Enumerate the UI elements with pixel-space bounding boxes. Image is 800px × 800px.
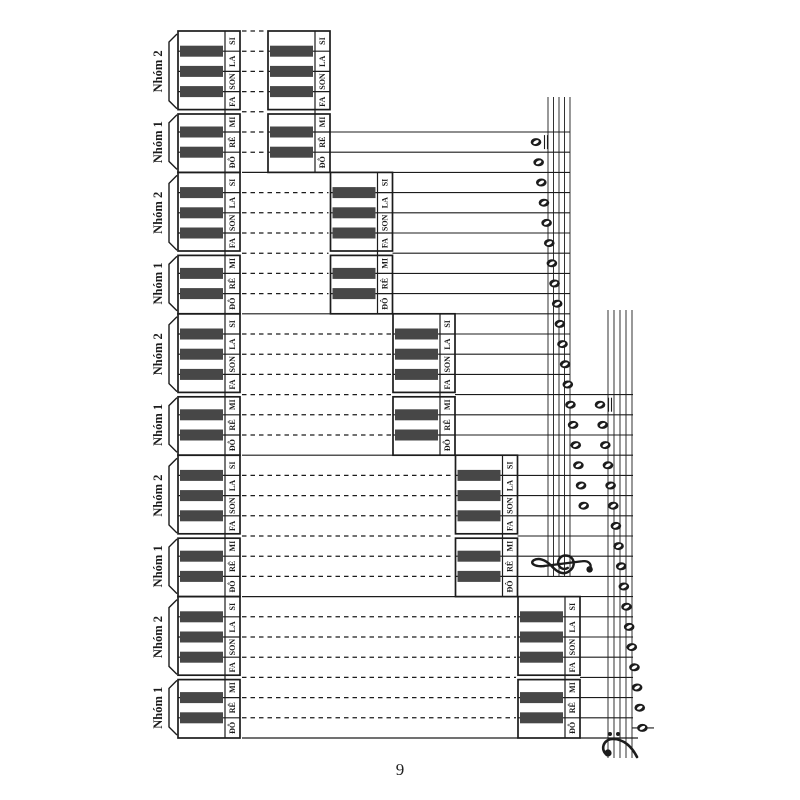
- group-brace-nhom2: [169, 317, 177, 392]
- key-label: LA: [568, 621, 577, 632]
- whole-note: [539, 199, 550, 207]
- black-key: [458, 490, 501, 501]
- key-label: SON: [228, 497, 237, 514]
- keyboard-staff-diagram: SILASONFAMIRÊĐÔSILASONFAMIRÊĐÔNhóm 2Nhóm…: [0, 0, 800, 800]
- key-label: SON: [443, 356, 452, 373]
- whole-note: [613, 542, 624, 550]
- group-brace-nhom1: [169, 680, 177, 735]
- black-key: [180, 288, 223, 299]
- black-key: [180, 409, 223, 420]
- key-label: SI: [228, 37, 237, 45]
- key-label: FA: [443, 379, 452, 389]
- black-key: [180, 510, 223, 521]
- octave-connector-dashes: [242, 334, 391, 435]
- black-key: [395, 349, 438, 360]
- black-key: [180, 692, 223, 703]
- black-key: [180, 329, 223, 340]
- group-brace-nhom2: [169, 458, 177, 533]
- whole-note: [547, 259, 558, 267]
- key-label: SI: [506, 462, 515, 470]
- key-label: MI: [228, 117, 237, 128]
- key-label: LA: [228, 480, 237, 491]
- black-key: [270, 46, 313, 57]
- bass-staff-note-column: [595, 398, 648, 732]
- key-label: LA: [506, 480, 515, 491]
- black-key: [180, 349, 223, 360]
- whole-note: [632, 684, 643, 692]
- octave-connector-dashes: [242, 617, 516, 718]
- whole-note: [611, 522, 622, 530]
- black-key: [395, 430, 438, 441]
- key-label: ĐÔ: [317, 156, 327, 168]
- whole-note: [541, 219, 552, 227]
- key-label: SI: [228, 462, 237, 470]
- black-key: [180, 86, 223, 97]
- key-label: RÊ: [227, 278, 237, 289]
- black-key: [180, 46, 223, 57]
- key-label: FA: [228, 379, 237, 389]
- whole-note: [619, 583, 630, 591]
- whole-note: [627, 643, 638, 651]
- key-label: ĐÔ: [380, 298, 390, 310]
- group-brace-nhom2: [169, 34, 177, 109]
- octave-connector-dashes: [242, 193, 329, 294]
- key-label: ĐÔ: [567, 722, 577, 734]
- black-key: [395, 369, 438, 380]
- group-brace-nhom2: [169, 175, 177, 250]
- black-key: [180, 430, 223, 441]
- black-key: [180, 187, 223, 198]
- whole-note: [578, 502, 589, 510]
- key-label: ĐÔ: [227, 298, 237, 310]
- keyboard-octave-5-right: SILASONFAMIRÊĐÔ: [518, 597, 580, 738]
- whole-note: [603, 461, 614, 469]
- black-key: [520, 611, 563, 622]
- black-key: [180, 127, 223, 138]
- black-key: [180, 490, 223, 501]
- black-key: [333, 228, 376, 239]
- black-key: [520, 632, 563, 643]
- black-key: [270, 147, 313, 158]
- black-key: [180, 66, 223, 77]
- keyboard-octave-2-left: SILASONFAMIRÊĐÔ: [178, 172, 240, 313]
- keyboard-octave-3-right: SILASONFAMIRÊĐÔ: [393, 314, 455, 455]
- group-label: Nhóm 1: [151, 121, 165, 163]
- treble-staff-note-column: [531, 135, 589, 510]
- black-key: [333, 288, 376, 299]
- whole-note: [600, 441, 611, 449]
- key-label: FA: [228, 238, 237, 248]
- black-key: [270, 86, 313, 97]
- whole-note: [637, 724, 648, 732]
- key-label: ĐÔ: [442, 439, 452, 451]
- whole-note: [570, 441, 581, 449]
- whole-note: [552, 300, 563, 308]
- whole-note: [544, 239, 555, 247]
- key-label: RÊ: [227, 137, 237, 148]
- octave-connector-dashes: [242, 31, 266, 152]
- whole-note: [595, 401, 606, 409]
- group-label: Nhóm 2: [151, 50, 165, 92]
- group-label: Nhóm 2: [151, 475, 165, 517]
- black-key: [270, 66, 313, 77]
- key-label: LA: [228, 338, 237, 349]
- whole-note: [549, 280, 560, 288]
- black-key: [270, 127, 313, 138]
- whole-note: [533, 158, 544, 166]
- group-label: Nhóm 1: [151, 404, 165, 446]
- black-key: [180, 551, 223, 562]
- octave-connector-dashes: [242, 475, 454, 576]
- key-label: FA: [506, 521, 515, 531]
- key-label: SON: [228, 214, 237, 231]
- black-key: [180, 207, 223, 218]
- key-label: FA: [228, 662, 237, 672]
- key-label: MI: [228, 258, 237, 269]
- key-label: MI: [381, 258, 390, 269]
- whole-note: [608, 502, 619, 510]
- bass-staff-lines: [608, 310, 632, 758]
- book-page: SILASONFAMIRÊĐÔSILASONFAMIRÊĐÔNhóm 2Nhóm…: [0, 0, 800, 800]
- key-label: SON: [228, 639, 237, 656]
- octave-row-5: SILASONFAMIRÊĐÔSILASONFAMIRÊĐÔNhóm 2Nhóm…: [151, 597, 580, 738]
- black-key: [180, 470, 223, 481]
- black-key: [180, 147, 223, 158]
- key-label: RÊ: [227, 419, 237, 430]
- whole-note: [565, 401, 576, 409]
- black-key: [458, 510, 501, 521]
- key-label: RÊ: [442, 419, 452, 430]
- key-label: LA: [443, 338, 452, 349]
- octave-row-1: SILASONFAMIRÊĐÔSILASONFAMIRÊĐÔNhóm 2Nhóm…: [151, 31, 330, 172]
- key-label: SI: [443, 320, 452, 328]
- whole-note: [573, 461, 584, 469]
- key-label: RÊ: [227, 561, 237, 572]
- group-label: Nhóm 1: [151, 545, 165, 587]
- key-label: ĐÔ: [227, 439, 237, 451]
- group-brace-nhom2: [169, 600, 177, 675]
- key-label: ĐÔ: [227, 156, 237, 168]
- key-label: SI: [568, 603, 577, 611]
- group-brace-nhom1: [169, 256, 177, 311]
- keyboard-octave-2-right: SILASONFAMIRÊĐÔ: [331, 172, 393, 313]
- keyboard-octave-1-right: SILASONFAMIRÊĐÔ: [268, 31, 330, 172]
- page-number: 9: [0, 760, 800, 780]
- keyboard-octave-1-left: SILASONFAMIRÊĐÔ: [178, 31, 240, 172]
- key-label: LA: [228, 197, 237, 208]
- black-key: [180, 571, 223, 582]
- whole-note: [616, 562, 627, 570]
- whole-note: [560, 360, 571, 368]
- black-key: [520, 652, 563, 663]
- whole-note: [531, 138, 542, 146]
- key-label: RÊ: [567, 702, 577, 713]
- key-label: SON: [568, 639, 577, 656]
- octave-row-3: SILASONFAMIRÊĐÔSILASONFAMIRÊĐÔNhóm 2Nhóm…: [151, 314, 455, 455]
- black-key: [180, 712, 223, 723]
- whole-note: [605, 482, 616, 490]
- black-key: [395, 409, 438, 420]
- key-label: FA: [228, 96, 237, 106]
- key-label: LA: [228, 621, 237, 632]
- whole-note: [597, 421, 608, 429]
- black-key: [458, 470, 501, 481]
- key-label: FA: [381, 238, 390, 248]
- key-label: RÊ: [317, 137, 327, 148]
- key-label: FA: [318, 96, 327, 106]
- key-label: RÊ: [380, 278, 390, 289]
- black-key: [180, 611, 223, 622]
- key-label: LA: [381, 197, 390, 208]
- group-brace-nhom1: [169, 398, 177, 453]
- key-label: FA: [568, 662, 577, 672]
- black-key: [180, 369, 223, 380]
- key-label: SON: [506, 497, 515, 514]
- treble-clef-icon: [532, 556, 593, 574]
- key-label: MI: [318, 117, 327, 128]
- key-label: SI: [318, 37, 327, 45]
- octave-row-4: SILASONFAMIRÊĐÔSILASONFAMIRÊĐÔNhóm 2Nhóm…: [151, 455, 518, 596]
- whole-note: [624, 623, 635, 631]
- whole-note: [629, 663, 640, 671]
- group-label: Nhóm 2: [151, 333, 165, 375]
- keyboard-octave-4-left: SILASONFAMIRÊĐÔ: [178, 455, 240, 596]
- black-key: [520, 692, 563, 703]
- key-label: SON: [318, 73, 327, 90]
- group-label: Nhóm 1: [151, 687, 165, 729]
- black-key: [180, 268, 223, 279]
- black-key: [395, 329, 438, 340]
- key-label: MI: [228, 682, 237, 693]
- whole-note: [568, 421, 579, 429]
- key-label: SON: [228, 73, 237, 90]
- key-label: SI: [228, 603, 237, 611]
- whole-note: [555, 320, 566, 328]
- key-label: MI: [443, 399, 452, 410]
- whole-note: [634, 704, 645, 712]
- group-label: Nhóm 1: [151, 262, 165, 304]
- whole-note: [536, 179, 547, 187]
- keyboard-octave-4-right: SILASONFAMIRÊĐÔ: [456, 455, 518, 596]
- key-label: LA: [228, 56, 237, 67]
- key-label: MI: [228, 541, 237, 552]
- keyboard-octave-3-left: SILASONFAMIRÊĐÔ: [178, 314, 240, 455]
- key-label: MI: [568, 682, 577, 693]
- key-label: LA: [318, 56, 327, 67]
- whole-note: [557, 340, 568, 348]
- whole-note: [621, 603, 632, 611]
- key-label: SON: [228, 356, 237, 373]
- key-label: SI: [381, 179, 390, 187]
- key-label: FA: [228, 521, 237, 531]
- black-key: [333, 187, 376, 198]
- black-key: [458, 571, 501, 582]
- black-key: [458, 551, 501, 562]
- key-label: ĐÔ: [227, 722, 237, 734]
- group-brace-nhom1: [169, 115, 177, 170]
- black-key: [520, 712, 563, 723]
- whole-note: [576, 482, 587, 490]
- black-key: [180, 228, 223, 239]
- black-key: [333, 207, 376, 218]
- key-label: MI: [228, 399, 237, 410]
- whole-note: [563, 381, 574, 389]
- black-key: [180, 632, 223, 643]
- key-label: ĐÔ: [227, 581, 237, 593]
- octave-row-2: SILASONFAMIRÊĐÔSILASONFAMIRÊĐÔNhóm 2Nhóm…: [151, 172, 393, 313]
- black-key: [180, 652, 223, 663]
- key-label: RÊ: [227, 702, 237, 713]
- group-label: Nhóm 2: [151, 616, 165, 658]
- key-label: MI: [506, 541, 515, 552]
- group-label: Nhóm 2: [151, 192, 165, 234]
- key-label: ĐÔ: [505, 581, 515, 593]
- key-label: SI: [228, 320, 237, 328]
- key-label: SI: [228, 179, 237, 187]
- group-brace-nhom1: [169, 539, 177, 594]
- keyboard-octave-5-left: SILASONFAMIRÊĐÔ: [178, 597, 240, 738]
- key-label: SON: [381, 214, 390, 231]
- key-label: RÊ: [505, 561, 515, 572]
- black-key: [333, 268, 376, 279]
- treble-staff-lines: [548, 97, 570, 577]
